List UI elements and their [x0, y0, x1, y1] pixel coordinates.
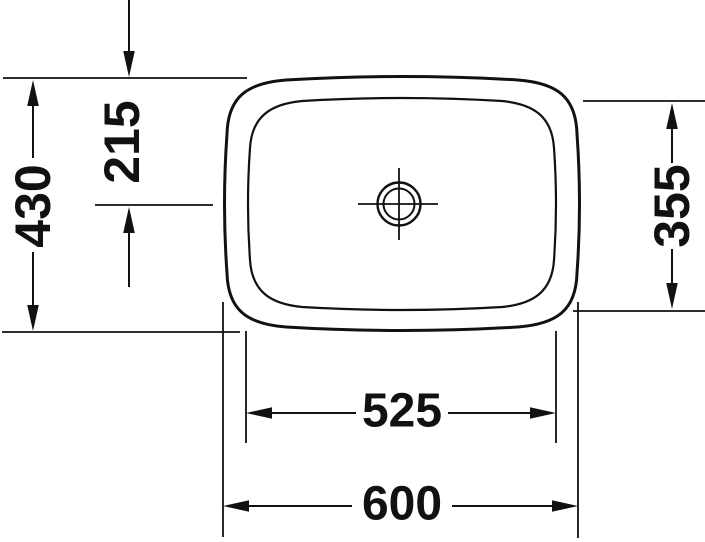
dim-525-arrow-left-icon [246, 407, 272, 419]
dim-430-arrow-down-icon [27, 305, 39, 331]
dim-355-arrow-down-icon [666, 283, 678, 309]
washbasin-dimension-drawing: 215 430 355 525 600 [0, 0, 705, 542]
dim-600-label: 600 [362, 478, 442, 531]
dim-430-label: 430 [5, 164, 61, 247]
dim-430-arrow-up-icon [27, 80, 39, 106]
dim-215-arrow-down-icon [123, 51, 135, 77]
dim-525-label: 525 [362, 385, 442, 438]
dim-355-arrow-up-icon [666, 103, 678, 129]
dim-600-arrow-right-icon [552, 500, 578, 512]
dim-525-arrow-right-icon [530, 407, 556, 419]
technical-drawing-svg: 215 430 355 525 600 [0, 0, 705, 542]
dim-215-arrow-up-icon [123, 207, 135, 233]
dim-600-arrow-left-icon [223, 500, 249, 512]
dim-215-label: 215 [94, 100, 150, 183]
dim-355-label: 355 [644, 164, 700, 247]
